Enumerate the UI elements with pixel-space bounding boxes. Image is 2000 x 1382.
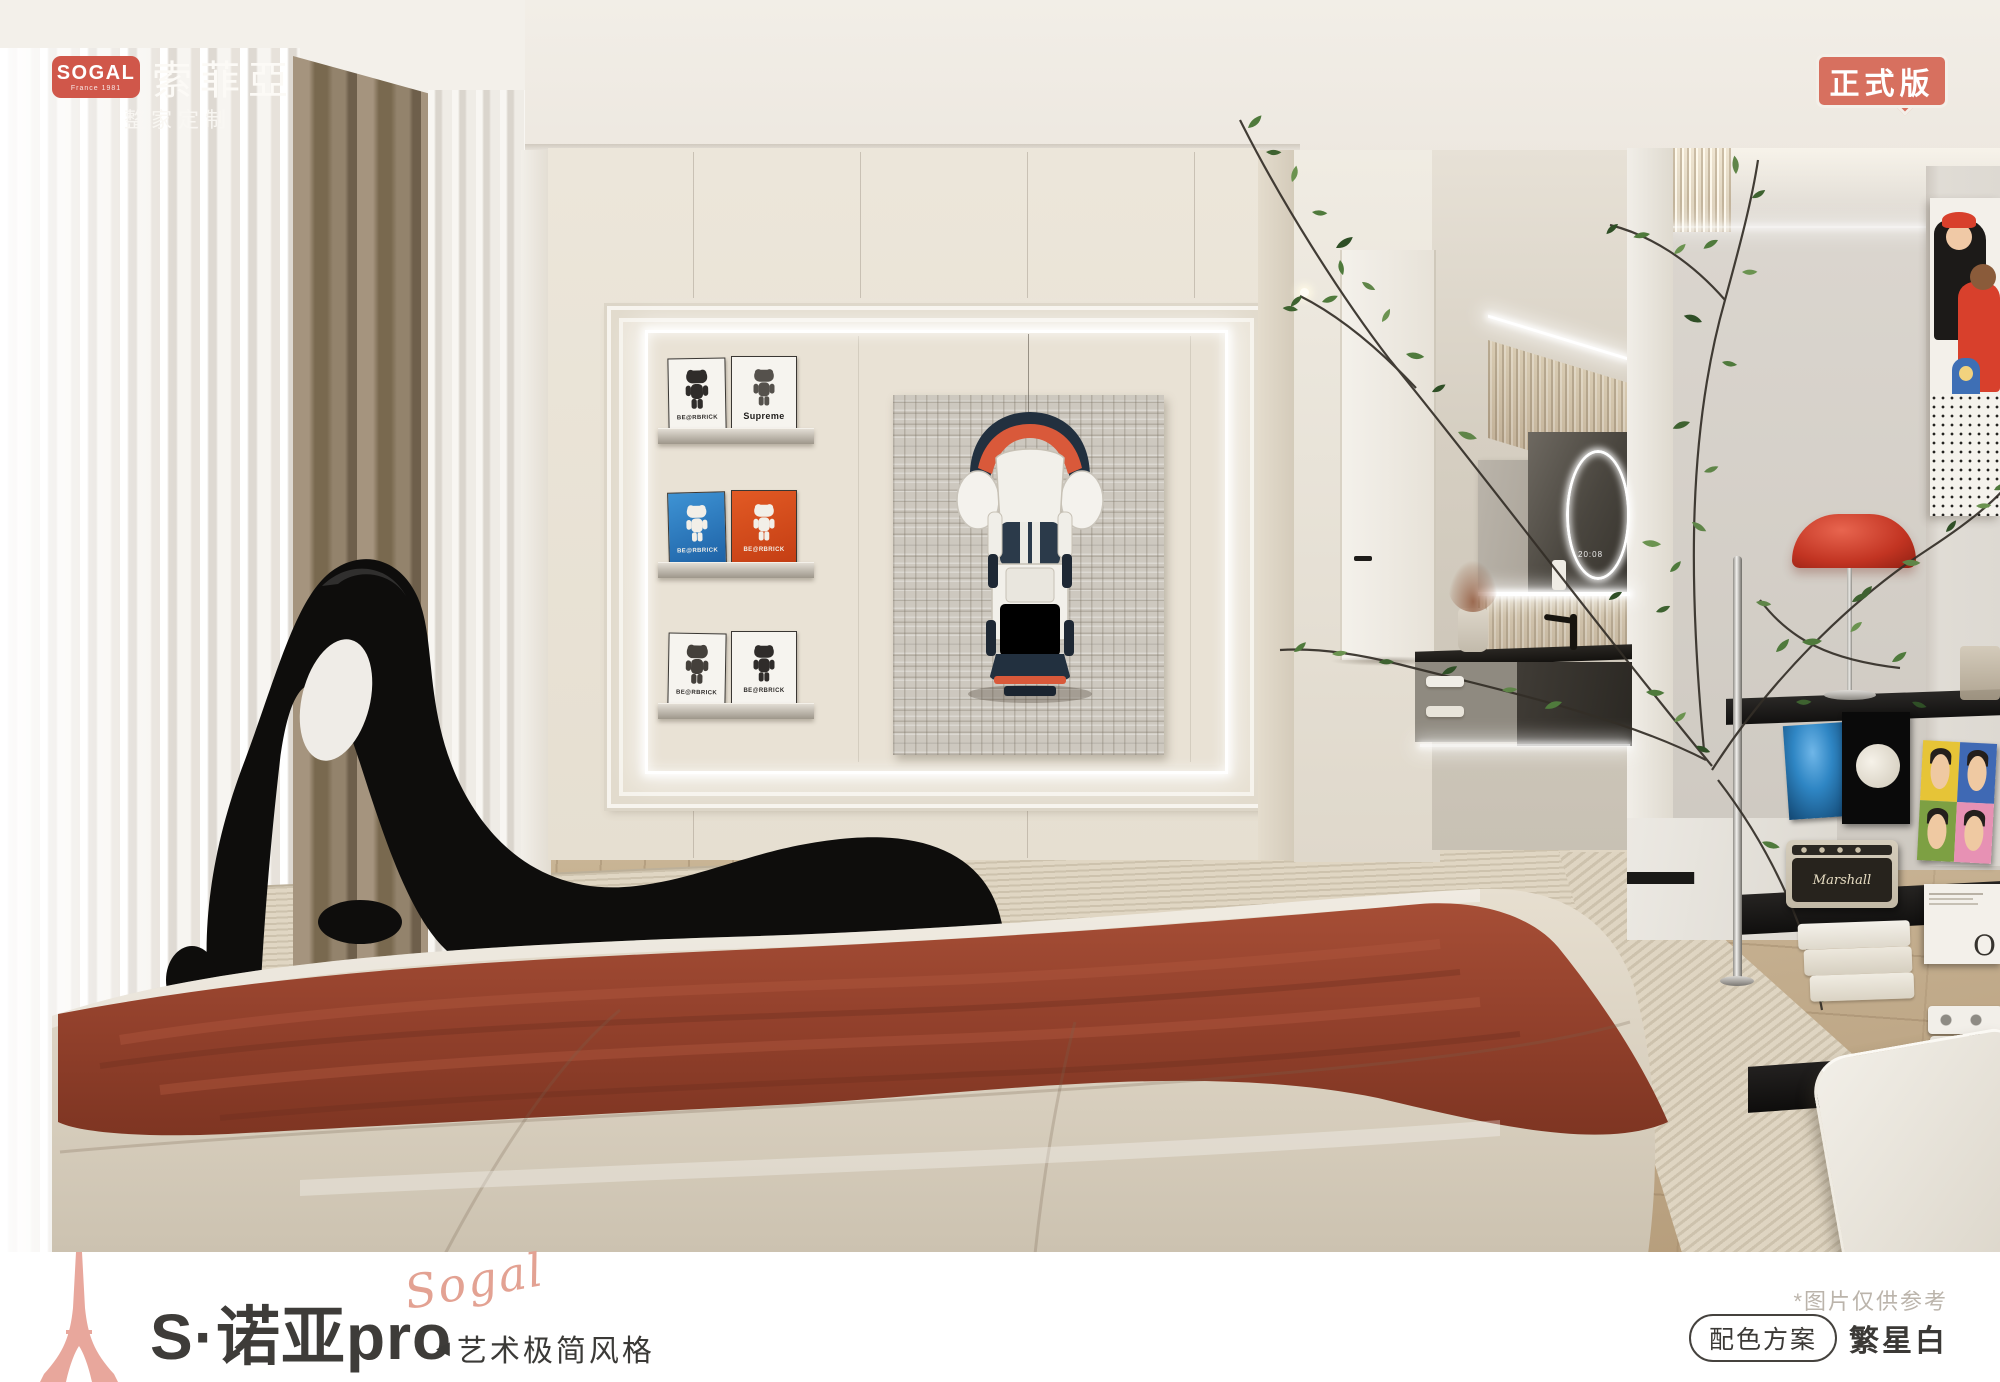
face-quad-yellow	[1920, 740, 1960, 802]
art-book: BE@RBRICK	[667, 632, 726, 705]
ceiling-spotlight	[1300, 288, 1309, 297]
etagere-chrome-pole	[1733, 556, 1742, 982]
book-ledge	[658, 428, 814, 444]
sogal-logo: SOGAL France 1981	[52, 56, 140, 98]
bearbrick-figure-icon	[750, 366, 778, 410]
logo-origin-text: France 1981	[71, 85, 121, 92]
speaker-grille: Marshall	[1792, 858, 1892, 902]
curtain-floor-shadow	[290, 1140, 440, 1164]
style-name-row: ◀ 艺术极简风格	[436, 1326, 655, 1370]
footer-band: S·诺亚pro Sogal ◀ 艺术极简风格 *图片仅供参考 配色方案 繁星白	[0, 1252, 2000, 1382]
backsplash-fluted	[1478, 596, 1630, 652]
art-book: BE@RBRICK	[667, 491, 727, 564]
logo-wordmark: SOGAL	[57, 63, 136, 83]
marshall-speaker: Marshall	[1786, 840, 1898, 908]
wardrobe-seam	[693, 152, 694, 298]
mirror-display-text: 20:08	[1578, 550, 1603, 559]
door-handle	[1354, 556, 1372, 561]
folded-towel	[1426, 676, 1464, 687]
bearbrick-figure-icon	[682, 367, 713, 414]
shelf-led	[1478, 592, 1630, 596]
style-arrow-icon: ◀	[436, 1338, 453, 1359]
art-book: BE@RBRICK	[731, 631, 797, 705]
towel-stack	[1810, 972, 1915, 1002]
book-title: BE@RBRICK	[676, 690, 717, 697]
brand-tagline: 整家定制	[124, 104, 232, 134]
poster-dotted-coat	[1930, 394, 2000, 516]
poster-face-small	[1959, 366, 1973, 381]
pole-foot	[1720, 976, 1754, 986]
pop-art-poster	[1930, 198, 2000, 516]
towel-stack	[1804, 946, 1913, 976]
image-disclaimer: *图片仅供参考	[1793, 1284, 1948, 1316]
lamp-stem	[1847, 568, 1852, 696]
wardrobe-seam	[1027, 152, 1028, 298]
book-title: BE@RBRICK	[743, 547, 784, 553]
style-name: 艺术极简风格	[457, 1326, 655, 1370]
color-scheme-row: 配色方案 繁星白	[1689, 1314, 1948, 1362]
window-jamb	[521, 150, 551, 1160]
blackout-curtain	[293, 56, 433, 1158]
art-book: BE@RBRICK	[731, 490, 797, 564]
version-badge: 正式版	[1816, 54, 1948, 108]
art-book: Supreme	[731, 356, 797, 430]
wardrobe-seam	[1194, 152, 1195, 298]
dried-flowers-vase	[1458, 608, 1488, 652]
under-vanity-led	[1420, 744, 1630, 747]
lamp-base	[1824, 690, 1876, 700]
record-moon-circle	[1856, 744, 1900, 788]
brand-script: Sogal	[400, 1242, 548, 1320]
folded-towel	[1426, 706, 1464, 717]
sheer-curtain-right	[428, 90, 525, 1160]
face-quad-pink	[1954, 802, 1994, 864]
book-ledge	[658, 562, 814, 578]
scheme-name: 繁星白	[1849, 1316, 1948, 1360]
vanity-cabinet-open	[1415, 662, 1517, 742]
bearbrick-figure-icon	[682, 502, 711, 547]
pillar	[1627, 148, 1673, 822]
poster-head-brown	[1970, 264, 1996, 290]
scheme-label-pill: 配色方案	[1689, 1314, 1837, 1362]
box-letter: O	[1973, 929, 1996, 962]
bearbrick-figure-icon	[750, 642, 778, 686]
bearbrick-figure-icon	[750, 501, 778, 545]
poster-red-beret	[1942, 212, 1976, 228]
lego-car-model	[948, 404, 1112, 708]
book-title: Supreme	[743, 412, 784, 421]
sogal-poster: BE@RBRICK Supreme BE@RBRICK BE@RBRICK BE…	[0, 0, 2000, 1382]
wardrobe-seam	[860, 152, 861, 298]
book-ledge	[658, 703, 814, 719]
reed-diffuser	[1960, 646, 2000, 700]
window-glow	[0, 48, 180, 1252]
vinyl-record-blue	[1783, 722, 1851, 820]
speaker-brand-script: Marshall	[1813, 873, 1871, 888]
storage-box: O	[1924, 884, 2000, 964]
book-title: BE@RBRICK	[677, 415, 718, 422]
bearbrick-figure-icon	[682, 642, 713, 689]
towel-stack	[1798, 920, 1911, 950]
wardrobe-seam	[693, 802, 694, 858]
cove-fluted-panel	[1673, 148, 1731, 232]
art-book: BE@RBRICK	[667, 357, 726, 430]
car-rear-deck	[996, 449, 1064, 533]
brand-name-cn: 索菲亞	[152, 48, 296, 106]
hallway-door	[1340, 250, 1436, 660]
face-quad-blue	[1957, 742, 1997, 804]
book-title: BE@RBRICK	[677, 547, 718, 554]
wardrobe-side-panel	[1258, 150, 1294, 860]
speaker-knob-strip	[1792, 845, 1892, 855]
cosmetic-bottle	[1552, 560, 1566, 590]
vinyl-record-faces	[1917, 740, 1997, 864]
mirror-led-ring	[1566, 450, 1630, 580]
wardrobe-seam	[1027, 802, 1028, 858]
face-quad-green	[1917, 800, 1957, 862]
dried-flowers	[1448, 560, 1498, 612]
book-title: BE@RBRICK	[743, 688, 784, 694]
eiffel-tower-logo	[30, 1252, 140, 1382]
vanity-cabinet-dark	[1517, 662, 1632, 746]
